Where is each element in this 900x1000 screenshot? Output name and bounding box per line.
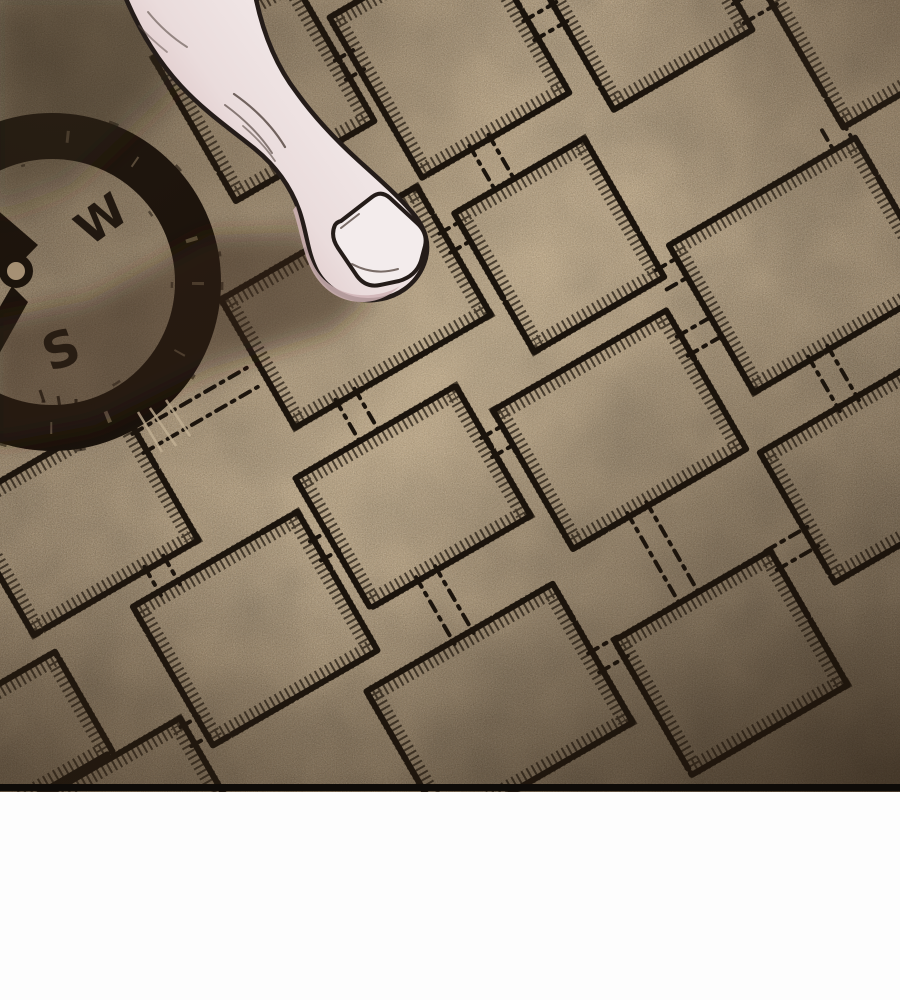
- map-scene: W S: [0, 0, 900, 792]
- page-margin: [0, 792, 900, 1000]
- panel-border-bottom: [0, 784, 900, 791]
- comic-page: W S: [0, 0, 900, 1000]
- map-panel: W S: [0, 0, 900, 792]
